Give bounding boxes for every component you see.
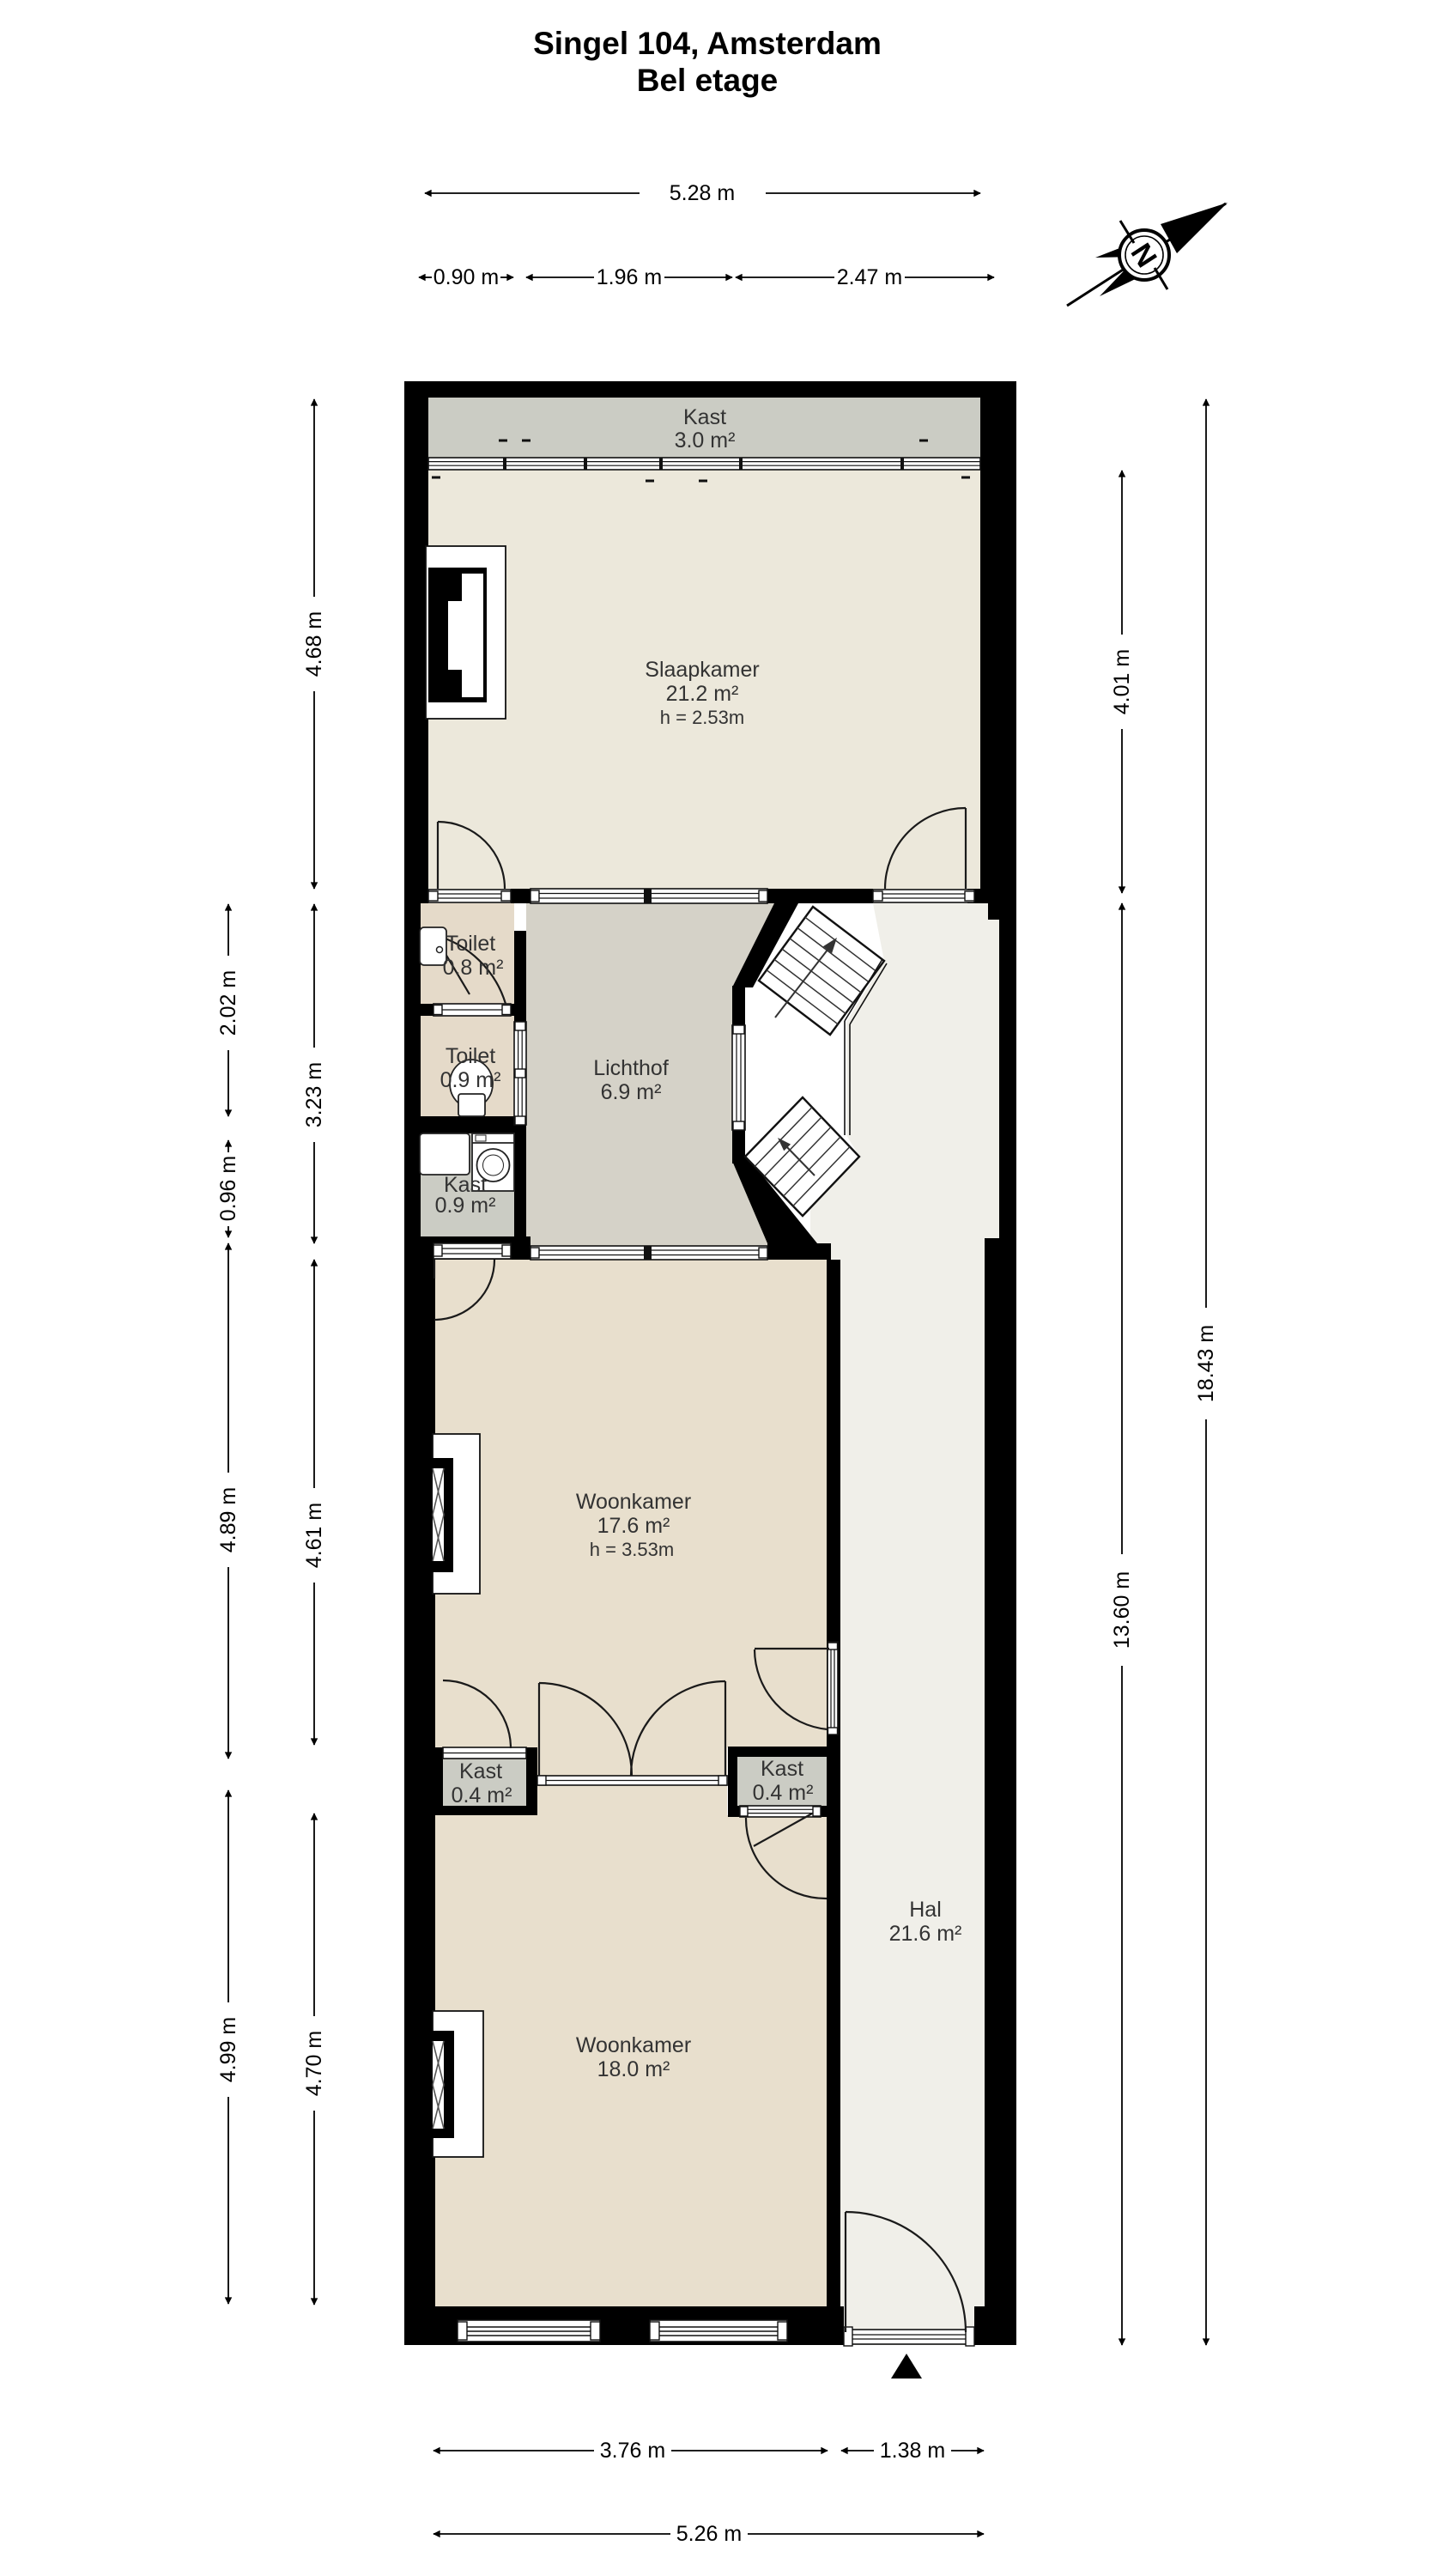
- svg-text:1.38 m: 1.38 m: [880, 2439, 945, 2463]
- svg-text:18.0 m²: 18.0 m²: [597, 2057, 670, 2081]
- svg-text:0.4 m²: 0.4 m²: [753, 1781, 814, 1805]
- svg-text:5.26 m: 5.26 m: [676, 2522, 742, 2546]
- svg-text:0.90 m: 0.90 m: [433, 265, 499, 289]
- svg-text:2.02 m: 2.02 m: [216, 970, 240, 1036]
- svg-text:0.9 m²: 0.9 m²: [435, 1194, 496, 1218]
- svg-text:0.9 m²: 0.9 m²: [440, 1068, 501, 1092]
- svg-text:3.76 m: 3.76 m: [600, 2439, 665, 2463]
- svg-text:Slaapkamer: Slaapkamer: [645, 658, 759, 682]
- svg-text:Toilet: Toilet: [446, 932, 495, 956]
- svg-text:4.01 m: 4.01 m: [1110, 649, 1134, 714]
- svg-text:1.96 m: 1.96 m: [597, 265, 662, 289]
- svg-text:h = 3.53m: h = 3.53m: [590, 1539, 674, 1560]
- svg-text:Woonkamer: Woonkamer: [576, 2033, 691, 2057]
- svg-text:13.60 m: 13.60 m: [1110, 1571, 1134, 1649]
- svg-text:0.96 m: 0.96 m: [216, 1156, 240, 1221]
- svg-text:Singel 104, Amsterdam: Singel 104, Amsterdam: [533, 26, 882, 61]
- svg-text:h = 2.53m: h = 2.53m: [660, 707, 744, 728]
- svg-text:6.9 m²: 6.9 m²: [601, 1080, 662, 1104]
- svg-text:Kast: Kast: [683, 405, 726, 429]
- svg-text:4.68 m: 4.68 m: [302, 611, 326, 677]
- svg-text:21.6 m²: 21.6 m²: [889, 1922, 962, 1946]
- svg-text:2.47 m: 2.47 m: [837, 265, 902, 289]
- svg-text:3.23 m: 3.23 m: [302, 1062, 326, 1127]
- svg-text:4.70 m: 4.70 m: [302, 2031, 326, 2096]
- svg-text:0.8 m²: 0.8 m²: [443, 956, 504, 980]
- svg-text:17.6 m²: 17.6 m²: [597, 1514, 670, 1538]
- svg-text:18.43 m: 18.43 m: [1194, 1325, 1218, 1402]
- svg-text:Lichthof: Lichthof: [593, 1056, 669, 1080]
- svg-text:5.28 m: 5.28 m: [670, 181, 735, 205]
- svg-text:4.61 m: 4.61 m: [302, 1503, 326, 1568]
- svg-text:Bel etage: Bel etage: [637, 63, 779, 98]
- svg-text:Hal: Hal: [909, 1898, 942, 1922]
- svg-text:Toilet: Toilet: [446, 1044, 495, 1068]
- svg-text:Kast: Kast: [761, 1757, 803, 1781]
- svg-text:0.4 m²: 0.4 m²: [452, 1783, 512, 1807]
- svg-text:3.0 m²: 3.0 m²: [675, 428, 736, 453]
- svg-text:Woonkamer: Woonkamer: [576, 1490, 691, 1514]
- svg-text:4.89 m: 4.89 m: [216, 1487, 240, 1552]
- svg-text:Kast: Kast: [459, 1759, 502, 1783]
- svg-text:4.99 m: 4.99 m: [216, 2017, 240, 2082]
- svg-text:21.2 m²: 21.2 m²: [666, 682, 739, 706]
